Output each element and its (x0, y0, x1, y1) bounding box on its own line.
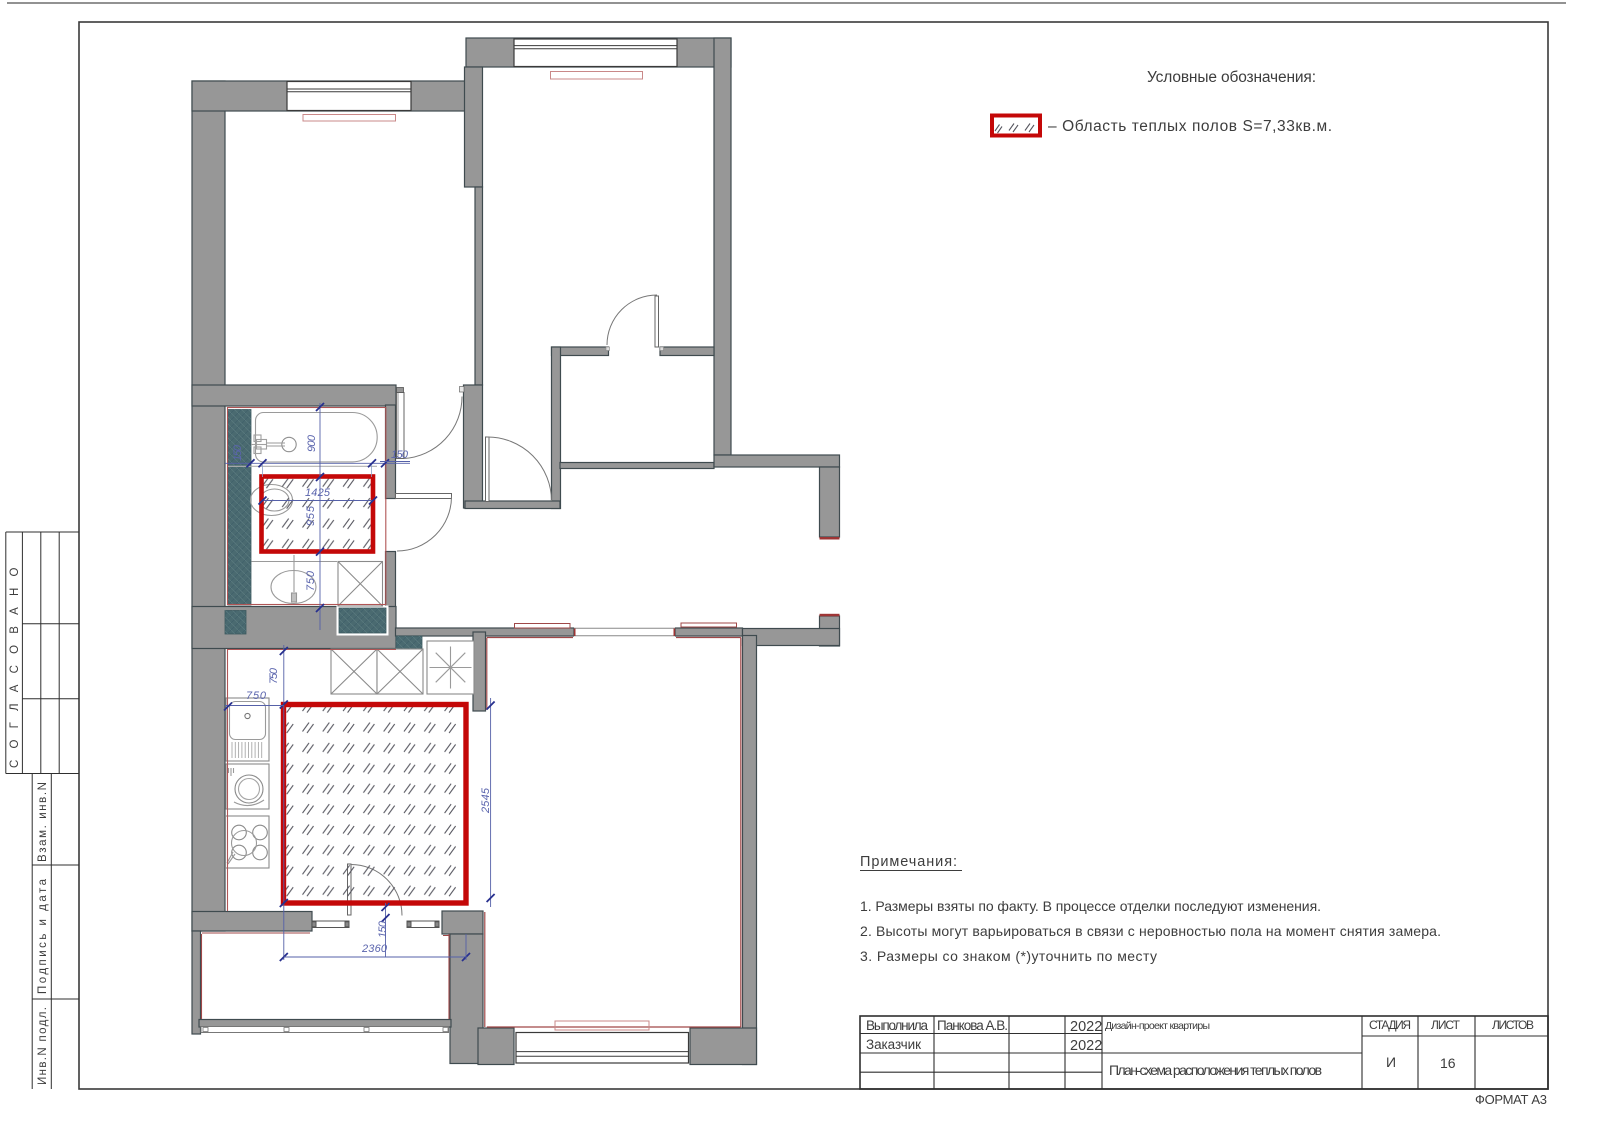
svg-text:Инв.N подл.: Инв.N подл. (37, 1007, 49, 1085)
svg-text:2022: 2022 (1070, 1038, 1102, 1054)
svg-text:2360: 2360 (361, 943, 388, 955)
svg-text:Условные обозначения:: Условные обозначения: (1147, 69, 1316, 86)
svg-text:900: 900 (306, 434, 318, 452)
svg-text:Выполнила: Выполнила (866, 1018, 928, 1033)
svg-text:150: 150 (377, 920, 389, 938)
svg-text:Примечания:: Примечания: (860, 854, 957, 870)
svg-text:16: 16 (1440, 1055, 1456, 1071)
svg-text:2. Высоты могут варьироваться: 2. Высоты могут варьироваться в связи с … (860, 923, 1441, 939)
svg-text:955: 955 (305, 505, 317, 526)
svg-text:Взам. инв.N: Взам. инв.N (37, 782, 49, 862)
svg-text:ФОРМАТ А3: ФОРМАТ А3 (1475, 1092, 1547, 1107)
svg-text:Заказчик: Заказчик (866, 1037, 921, 1052)
svg-text:Дизайн-проект квартиры: Дизайн-проект квартиры (1105, 1020, 1210, 1032)
svg-text:750: 750 (246, 690, 267, 702)
svg-text:1425: 1425 (305, 487, 331, 499)
svg-text:3. Размеры со знаком (*)уточни: 3. Размеры со знаком (*)уточнить по мест… (860, 948, 1157, 964)
svg-text:С О Г Л А С О В А Н О: С О Г Л А С О В А Н О (9, 564, 21, 769)
svg-text:750: 750 (268, 667, 280, 684)
svg-text:И: И (1386, 1054, 1396, 1070)
svg-text:750: 750 (305, 570, 317, 591)
svg-text:150: 150 (232, 444, 244, 461)
svg-text:СТАДИЯ: СТАДИЯ (1369, 1018, 1411, 1032)
svg-text:– Область теплых полов S=7,33: – Область теплых полов S=7,33кв.м. (1048, 118, 1332, 135)
svg-text:150: 150 (391, 449, 409, 461)
svg-text:1. Размеры взяты по факту. В: 1. Размеры взяты по факту. В процессе от… (860, 898, 1321, 914)
svg-text:План-схема расположения теплых: План-схема расположения теплых полов (1109, 1062, 1322, 1078)
svg-text:ЛИСТОВ: ЛИСТОВ (1492, 1018, 1534, 1032)
svg-text:ЛИСТ: ЛИСТ (1431, 1018, 1461, 1032)
svg-text:2545: 2545 (480, 787, 492, 814)
svg-text:2022: 2022 (1070, 1019, 1102, 1035)
svg-text:Панкова А.В.: Панкова А.В. (937, 1018, 1008, 1033)
